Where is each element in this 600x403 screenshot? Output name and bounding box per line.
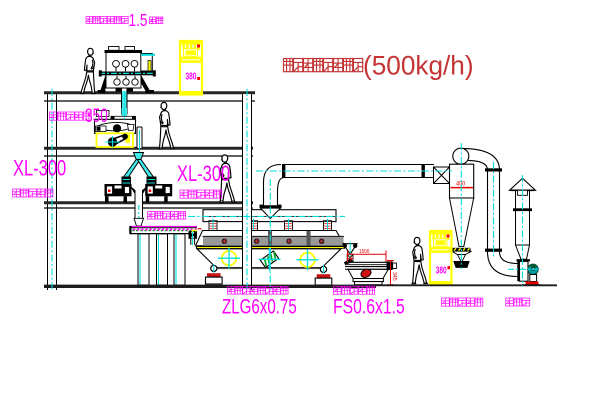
svg-text:XL-300: XL-300 — [177, 162, 230, 187]
svg-text:FS0.6x1.5: FS0.6x1.5 — [333, 294, 405, 318]
svg-text:1500: 1500 — [359, 249, 370, 255]
svg-text:(500kg/h): (500kg/h) — [363, 50, 474, 80]
svg-text:350: 350 — [85, 105, 108, 127]
svg-text:345: 345 — [391, 272, 397, 281]
svg-text:ZLG6x0.75: ZLG6x0.75 — [222, 294, 297, 318]
svg-text:XL-300: XL-300 — [13, 156, 66, 181]
svg-text:380: 380 — [186, 70, 197, 82]
svg-text:1.5: 1.5 — [129, 11, 148, 30]
svg-text:380: 380 — [436, 264, 447, 276]
